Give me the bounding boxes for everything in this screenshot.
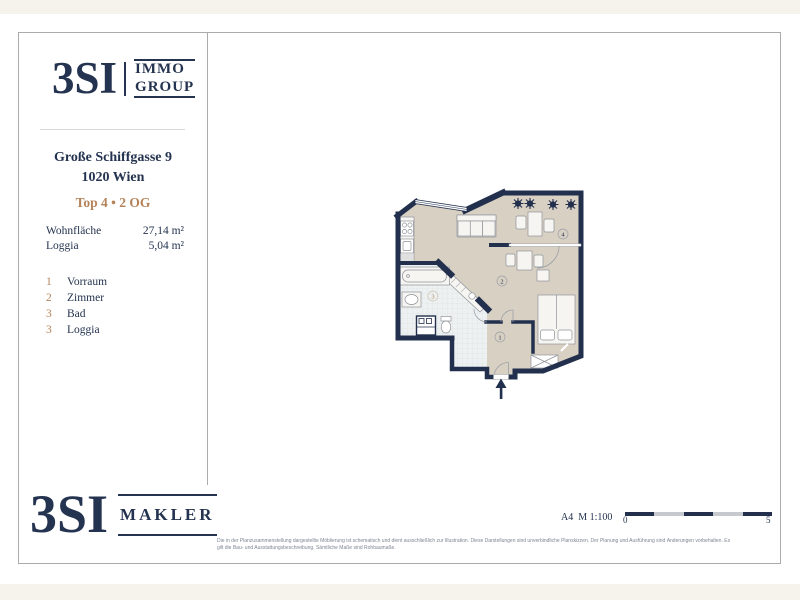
washing-machine xyxy=(417,316,436,335)
immo-group-logo: 3SI IMMO GROUP xyxy=(52,58,195,99)
brand-3si-text: 3SI xyxy=(30,489,108,540)
logo-word-makler: MAKLER xyxy=(118,496,217,534)
svg-text:1: 1 xyxy=(498,334,501,341)
header-separator-line xyxy=(40,129,185,130)
area-value: 27,14 m² xyxy=(143,224,184,239)
area-value: 5,04 m² xyxy=(149,239,184,254)
logo-word-immo: IMMO xyxy=(134,61,195,78)
area-label: Wohnfläche xyxy=(46,224,101,239)
address-street: Große Schiffgasse 9 xyxy=(18,150,208,166)
unit-floor-label: Top 4 • 2 OG xyxy=(18,195,208,211)
room-label: Bad xyxy=(67,306,86,322)
address-city: 1020 Wien xyxy=(18,170,208,186)
room-label: Vorraum xyxy=(67,274,107,290)
scale-segment xyxy=(713,512,742,516)
logo-rule-bottom xyxy=(118,534,217,536)
plant-icon xyxy=(513,198,524,209)
room-label: Zimmer xyxy=(67,290,104,306)
room-label: Loggia xyxy=(67,322,100,338)
floor-plan: 1 2 3 4 xyxy=(387,188,597,400)
room-row: 1 Vorraum xyxy=(46,274,107,290)
scale-five-label: 5 xyxy=(766,515,771,525)
logo-wordmark: MAKLER xyxy=(118,494,217,536)
scale-segment xyxy=(684,512,713,516)
logo-vertical-rule xyxy=(124,62,126,96)
makler-logo: 3SI MAKLER xyxy=(30,489,217,540)
area-row-wohnflaeche: Wohnfläche 27,14 m² xyxy=(46,224,184,239)
area-table: Wohnfläche 27,14 m² Loggia 5,04 m² xyxy=(46,224,184,254)
room-row: 2 Zimmer xyxy=(46,290,107,306)
brand-3si-text: 3SI xyxy=(52,58,117,99)
nightstand xyxy=(537,270,549,281)
room-number: 2 xyxy=(46,290,55,306)
counter-sink xyxy=(469,293,475,299)
format-scale-label: A4 M 1:100 xyxy=(561,512,612,523)
bed xyxy=(538,295,575,344)
area-row-loggia: Loggia 5,04 m² xyxy=(46,239,184,254)
kitchen-sink xyxy=(401,239,414,253)
room-number: 3 xyxy=(46,322,55,338)
entrance-arrow-icon xyxy=(496,379,507,400)
svg-text:3: 3 xyxy=(431,293,434,300)
kitchen-counter xyxy=(400,217,414,263)
disclaimer-text: Die in der Planzusammenstellung dargeste… xyxy=(217,538,777,551)
area-label: Loggia xyxy=(46,239,79,254)
room-row: 3 Bad xyxy=(46,306,107,322)
scale-bar xyxy=(625,512,772,516)
logo-wordmark: IMMO GROUP xyxy=(134,59,195,98)
plant-icon xyxy=(548,199,559,210)
room-number: 3 xyxy=(46,306,55,322)
loggia-glass-door xyxy=(509,244,581,247)
sofa xyxy=(457,215,496,237)
expose-page: { "header_logo": { "brand": "3SI", "word… xyxy=(0,0,800,600)
room-legend: 1 Vorraum 2 Zimmer 3 Bad 3 Loggia xyxy=(46,274,107,338)
disclaimer-line-1: Die in der Planzusammenstellung dargeste… xyxy=(217,538,777,545)
scale-segment xyxy=(654,512,683,516)
room-row: 3 Loggia xyxy=(46,322,107,338)
plant-icon xyxy=(566,199,577,210)
logo-word-group: GROUP xyxy=(134,79,195,96)
plant-icon xyxy=(525,198,536,209)
washbasin xyxy=(402,292,421,307)
disclaimer-line-2: gilt die Bau- und Ausstattungsbeschreibu… xyxy=(217,545,777,552)
svg-text:2: 2 xyxy=(500,278,503,285)
scale-zero-label: 0 xyxy=(623,515,628,525)
toilet xyxy=(441,317,451,334)
sidebar-divider xyxy=(207,33,208,485)
room-number: 1 xyxy=(46,274,55,290)
logo-rule-bottom xyxy=(134,96,195,98)
pillow xyxy=(541,330,555,340)
scale-segment xyxy=(625,512,654,516)
pillow xyxy=(558,330,572,340)
